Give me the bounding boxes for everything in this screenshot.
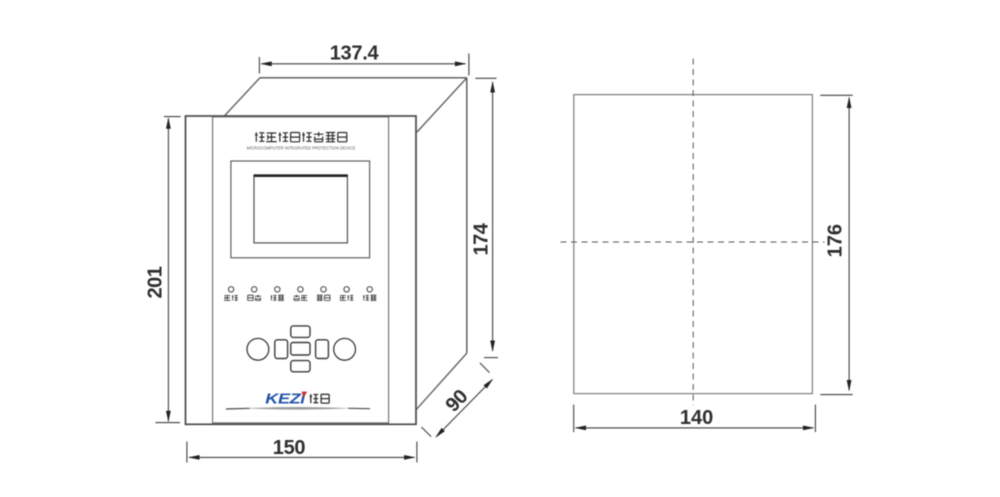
svg-text:MICROCOMPUTER INTEGRATED PROTE: MICROCOMPUTER INTEGRATED PROTECTION DEVI… <box>247 145 356 150</box>
svg-text:KEZi: KEZi <box>265 391 305 407</box>
svg-text:150: 150 <box>273 437 306 459</box>
svg-text:137.4: 137.4 <box>330 43 380 65</box>
svg-text:140: 140 <box>680 407 713 429</box>
svg-text:201: 201 <box>145 266 167 298</box>
svg-text:176: 176 <box>825 224 847 257</box>
svg-text:90: 90 <box>442 385 473 416</box>
svg-text:174: 174 <box>470 222 492 255</box>
